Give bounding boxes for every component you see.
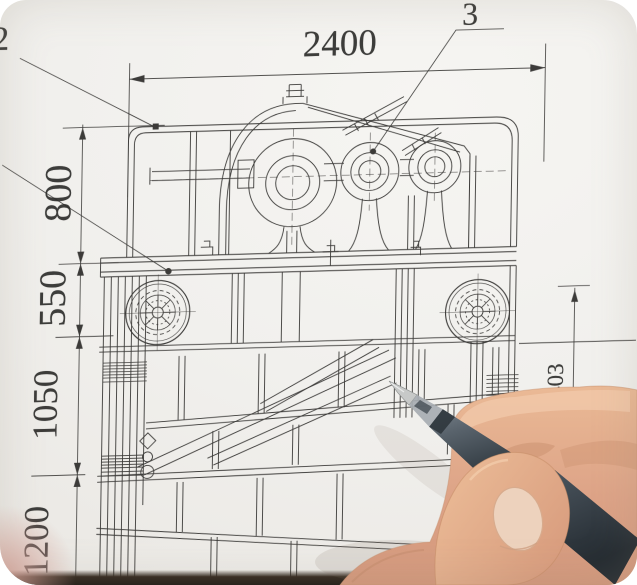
hand-holding-pen	[0, 0, 637, 585]
photo-engineering-drawing: 2400 800 550 1050 1200 1403 2 3	[0, 0, 637, 585]
